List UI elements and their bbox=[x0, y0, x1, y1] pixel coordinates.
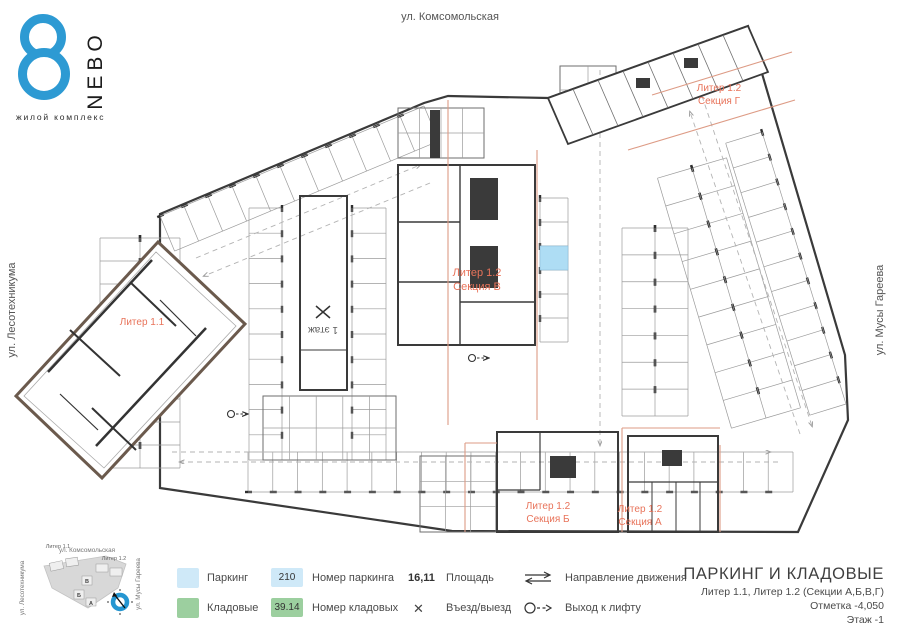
legend-direction-label: Направление движения bbox=[565, 572, 687, 584]
entry-exit-icon: ✕ bbox=[413, 601, 424, 617]
label-section-v-2: Секция В bbox=[453, 281, 501, 293]
storage-swatch bbox=[177, 598, 199, 618]
legend-storage-label: Кладовые bbox=[207, 602, 258, 614]
legend-area-value: 16,11 bbox=[408, 572, 435, 584]
label-section-a-2: Секция А bbox=[618, 517, 662, 528]
sheet-subtitle: Литер 1.1, Литер 1.2 (Секции А,Б,В,Г) bbox=[683, 586, 884, 598]
floor1-label: 1 этаж bbox=[308, 324, 338, 335]
label-section-g-2: Секция Г bbox=[698, 96, 741, 107]
sheet-elevation: Отметка -4,050 bbox=[683, 600, 884, 612]
minimap-section-a: А bbox=[89, 601, 93, 607]
parking-number-badge: 210 bbox=[271, 568, 303, 587]
stair-shaft bbox=[430, 110, 440, 158]
label-section-g-1: Литер 1.2 bbox=[697, 83, 742, 94]
label-section-b-2: Секция Б bbox=[526, 514, 570, 525]
lift-exit-icon bbox=[228, 411, 248, 418]
parking-swatch bbox=[177, 568, 199, 588]
legend-entry-label: Въезд/выезд bbox=[446, 602, 511, 614]
legend-parking-label: Паркинг bbox=[207, 572, 248, 584]
lift-exit-icon bbox=[522, 600, 554, 616]
label-section-a-1: Литер 1.2 bbox=[618, 504, 663, 515]
lift-exit-icon bbox=[469, 355, 489, 362]
label-liter-1-1: Литер 1.1 bbox=[120, 317, 165, 328]
minimap-section-v: В bbox=[85, 579, 89, 585]
building-section-b: Литер 1.2 Секция Б bbox=[465, 428, 622, 532]
legend-storage-number-label: Номер кладовых bbox=[312, 602, 398, 614]
page: NEBO жилой комплекс ул. Комсомольская ул… bbox=[0, 0, 900, 637]
building-section-g: Литер 1.2 Секция Г bbox=[548, 26, 795, 150]
entry-exit-icon bbox=[316, 306, 330, 318]
elevator-shaft bbox=[550, 456, 576, 478]
minimap-section-b: Б bbox=[77, 593, 81, 599]
legend-parking-number-label: Номер паркинга bbox=[312, 572, 394, 584]
elevator-shaft bbox=[662, 450, 682, 466]
legend-lift-label: Выход к лифту bbox=[565, 602, 641, 614]
site-minimap: ул. Комсомольская ул. Лесотехникума ул. … bbox=[14, 536, 159, 636]
ramp-first-floor: 1 этаж bbox=[300, 196, 347, 390]
minimap-liter11-label: Литер 1.1 bbox=[46, 544, 70, 550]
storage-number-badge: 39.14 bbox=[271, 598, 303, 617]
minimap-street-right: ул. Мусы Гареева bbox=[135, 558, 142, 610]
legend-area-label: Площадь bbox=[446, 572, 494, 584]
label-section-v-1: Литер 1.2 bbox=[453, 267, 502, 279]
direction-icon bbox=[522, 570, 554, 586]
sheet-title: ПАРКИНГ И КЛАДОВЫЕ bbox=[683, 565, 884, 584]
building-liter-1-1: Литер 1.1 bbox=[16, 242, 245, 478]
building-section-v: Литер 1.2 Секция В bbox=[398, 100, 537, 425]
highlighted-parking-space[interactable] bbox=[540, 246, 568, 270]
label-section-b-1: Литер 1.2 bbox=[526, 501, 571, 512]
sheet-floor: Этаж -1 bbox=[683, 614, 884, 626]
title-block: ПАРКИНГ И КЛАДОВЫЕ Литер 1.1, Литер 1.2 … bbox=[683, 565, 884, 626]
elevator-shaft bbox=[470, 178, 498, 220]
minimap-liter12-label: Литер 1.2 bbox=[102, 556, 126, 562]
minimap-street-left: ул. Лесотехникума bbox=[19, 560, 26, 615]
